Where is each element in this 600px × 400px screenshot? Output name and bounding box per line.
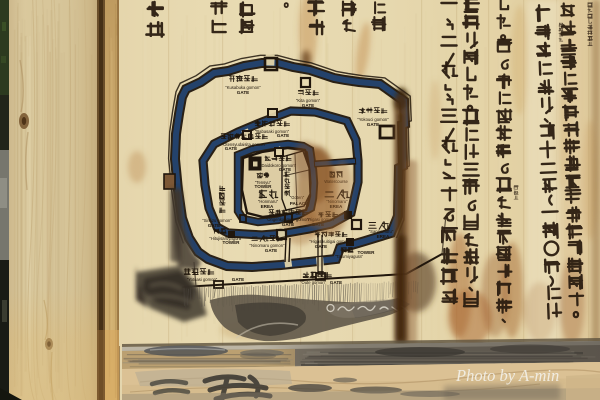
svg-text:GATE: GATE: [367, 122, 379, 127]
svg-text:GATE: GATE: [225, 146, 237, 151]
svg-text:GATE: GATE: [279, 167, 291, 172]
svg-text:GATE: GATE: [282, 222, 294, 227]
svg-text:EREA: EREA: [377, 234, 390, 239]
svg-text:GATE: GATE: [302, 103, 314, 108]
svg-text:GATE: GATE: [315, 244, 327, 249]
svg-text:GATE: GATE: [237, 90, 249, 95]
svg-text:Photo by A-min: Photo by A-min: [455, 366, 559, 385]
svg-text:GATE: GATE: [277, 133, 289, 138]
svg-text:GATE: GATE: [232, 277, 244, 282]
svg-text:"Yotuasi gomon": "Yotuasi gomon": [187, 277, 218, 282]
svg-text:TOWER: TOWER: [357, 250, 375, 255]
svg-text:TOWER: TOWER: [222, 240, 240, 245]
svg-text:"Oute gomon": "Oute gomon": [300, 280, 327, 285]
svg-text:TOWER: TOWER: [254, 184, 272, 189]
svg-text:GATE: GATE: [208, 223, 220, 228]
svg-text:GATE: GATE: [330, 280, 342, 285]
svg-text:GATE: GATE: [265, 248, 277, 253]
svg-text:EREA: EREA: [261, 204, 274, 209]
